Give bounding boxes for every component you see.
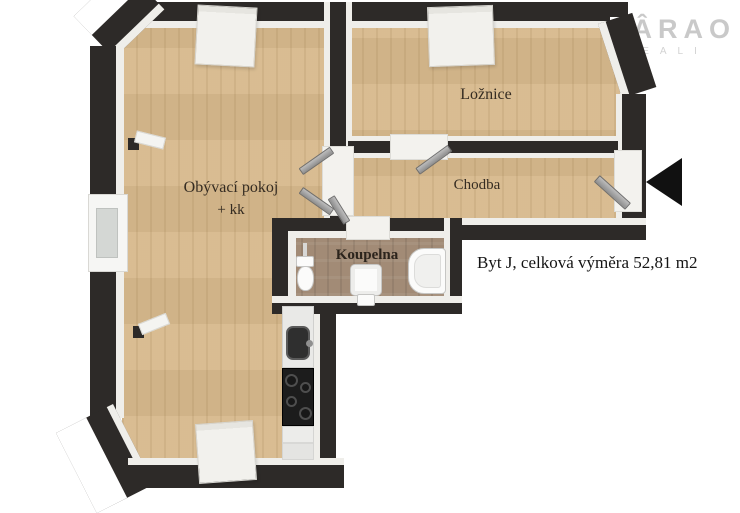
washbasin	[350, 264, 382, 296]
cooktop-burner	[299, 407, 312, 420]
entrance-arrow-icon	[646, 158, 682, 206]
bathroom-top-wall-right	[388, 218, 448, 238]
window-glass	[96, 208, 118, 258]
hallway-bottom-wall	[444, 218, 646, 240]
bathroom-top-wall-left	[288, 218, 348, 238]
bathroom-door-threshold	[346, 216, 390, 240]
skylight-window-living-bottom	[195, 420, 257, 484]
living-room-suffix: + kk	[184, 202, 279, 219]
bedroom-hall-partition-wall	[348, 136, 618, 158]
toilet-bowl	[297, 266, 314, 291]
bathroom-label: Koupelna	[336, 247, 399, 264]
bathtub-basin	[414, 254, 441, 288]
skylight-window-bedroom	[427, 5, 495, 67]
kitchen-faucet-icon	[306, 340, 313, 347]
cooktop-burner	[285, 374, 298, 387]
washbasin-pedestal	[357, 294, 375, 306]
cooktop-burner	[286, 396, 297, 407]
kitchen-cooktop	[282, 368, 314, 426]
skylight-window-living-top	[194, 4, 257, 67]
cooktop-burner	[300, 382, 311, 393]
living-room-label: Obývací pokoj + kk	[184, 179, 279, 219]
bedroom-label: Ložnice	[460, 86, 512, 104]
living-room-name: Obývací pokoj	[184, 179, 279, 197]
hallway-label: Chodba	[454, 177, 501, 194]
apartment-area-label: Byt J, celková výměra 52,81 m2	[477, 253, 698, 273]
kitchen-cabinet	[282, 426, 314, 460]
floorplan-canvas: { "watermark": { "line1": "FÂRAO", "line…	[0, 0, 740, 493]
kitchen-side-wall	[314, 308, 336, 458]
